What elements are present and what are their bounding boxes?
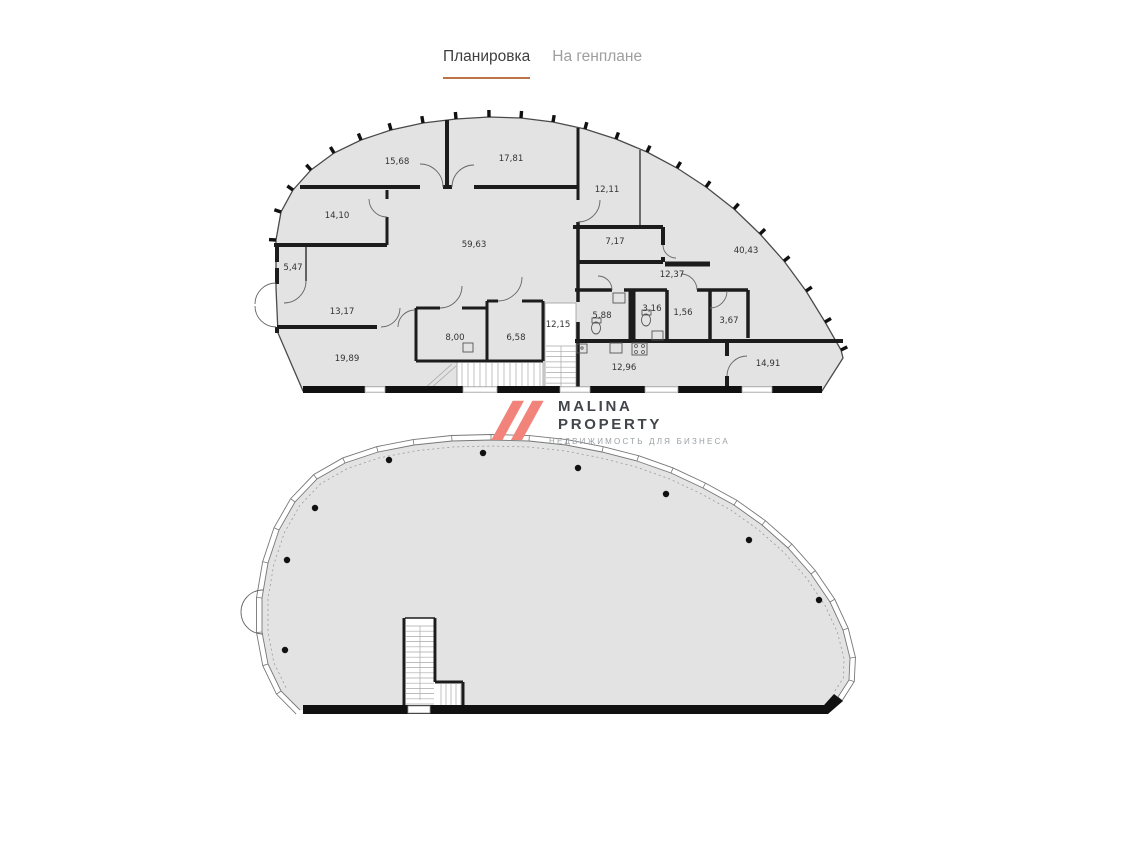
tab-bar: Планировка На генплане [443, 48, 642, 79]
facade-tick [422, 116, 423, 123]
exterior-wall [772, 386, 822, 393]
lower-plan-floor [262, 440, 850, 710]
facade-tick [734, 204, 739, 209]
facade-mullion [314, 475, 317, 479]
tab-planirovka[interactable]: Планировка [443, 48, 530, 79]
door-arc [241, 590, 263, 612]
exterior-wall [678, 386, 742, 393]
facade-mullion [762, 521, 765, 525]
exterior-wall [303, 386, 365, 393]
logo-title-line1: MALINA [558, 398, 730, 416]
plan-page: Планировка На генплане 15,6817,8112,1114… [0, 0, 1139, 853]
room-area-label: 17,81 [499, 154, 524, 164]
room-area-label: 6,58 [506, 333, 525, 343]
lower-stair-shaft [404, 618, 437, 712]
window [645, 387, 678, 392]
facade-mullion [843, 628, 848, 630]
active-tab-underline [443, 77, 530, 79]
room-area-label: 5,88 [592, 311, 611, 321]
facade-tick [521, 111, 522, 118]
facade-tick [677, 162, 681, 168]
facade-tick [274, 210, 281, 212]
window [408, 706, 430, 713]
facade-mullion [788, 544, 792, 548]
door-arc [255, 283, 276, 304]
facade-mullion [602, 447, 603, 452]
tab-genplan[interactable]: На генплане [552, 48, 642, 79]
facade-mullion [703, 483, 705, 488]
logo-names: MALINA PROPERTY НЕДВИЖИМОСТЬ ДЛЯ БИЗНЕСА [558, 397, 730, 446]
door-arc [241, 612, 263, 634]
facade-mullion [291, 499, 295, 502]
column [816, 597, 822, 603]
column [480, 450, 486, 456]
facade-mullion [850, 657, 855, 658]
upper-stair-shaft [545, 303, 576, 390]
upper-stair-flight [457, 362, 543, 390]
facade-tick [358, 134, 361, 140]
facade-mullion [671, 468, 673, 473]
room-area-label: 3,16 [642, 304, 661, 314]
facade-mullion [734, 500, 737, 505]
room-area-label: 40,43 [734, 246, 759, 256]
column [663, 491, 669, 497]
column [386, 457, 392, 463]
facade-mullion [413, 440, 414, 445]
facade-mullion [849, 680, 854, 682]
facade-tick [806, 287, 812, 291]
logo-row: MALINA PROPERTY НЕДВИЖИМОСТЬ ДЛЯ БИЗНЕСА [487, 397, 687, 446]
facade-mullion [830, 599, 835, 602]
room-area-label: 12,11 [595, 185, 620, 195]
facade-tick [784, 257, 789, 261]
facade-tick [553, 115, 554, 122]
exterior-wall [303, 705, 827, 714]
facade-tick [706, 181, 710, 187]
exterior-wall [385, 386, 463, 393]
facade-mullion [811, 571, 815, 574]
tab-planirovka-label: Планировка [443, 48, 530, 65]
facade-mullion [276, 691, 281, 694]
facade-tick [389, 123, 391, 130]
facade-tick [647, 146, 650, 152]
window [365, 387, 385, 392]
facade-mullion [263, 562, 268, 563]
column [746, 537, 752, 543]
door-arc [255, 306, 276, 327]
facade-tick [841, 347, 847, 350]
logo-tagline: НЕДВИЖИМОСТЬ ДЛЯ БИЗНЕСА [549, 437, 730, 446]
facade-tick [760, 229, 765, 234]
room-area-label: 5,47 [283, 263, 302, 273]
room-area-label: 12,96 [612, 363, 637, 373]
room-area-label: 13,17 [330, 307, 355, 317]
facade-mullion [274, 528, 279, 530]
facade-mullion [343, 458, 345, 463]
room-area-label: 14,10 [325, 211, 350, 221]
malina-logo-icon [487, 397, 546, 440]
exterior-wall [590, 386, 645, 393]
window [560, 387, 590, 392]
room-area-label: 15,68 [385, 157, 410, 167]
malina-property-logo: MALINA PROPERTY НЕДВИЖИМОСТЬ ДЛЯ БИЗНЕСА [487, 397, 687, 446]
window [463, 387, 497, 392]
facade-tick [330, 147, 334, 153]
column [284, 557, 290, 563]
tab-genplan-label: На генплане [552, 48, 642, 65]
column [575, 465, 581, 471]
facade-tick [306, 165, 311, 170]
room-area-label: 3,67 [719, 316, 738, 326]
facade-tick [585, 122, 587, 129]
room-area-label: 19,89 [335, 354, 360, 364]
facade-tick [825, 318, 831, 322]
facade-mullion [637, 456, 639, 461]
room-area-label: 1,56 [673, 308, 692, 318]
room-area-label: 12,15 [546, 320, 571, 330]
facade-tick [455, 112, 456, 119]
room-area-label: 59,63 [462, 240, 487, 250]
room-area-label: 12,37 [660, 270, 685, 280]
facade-tick [287, 186, 293, 190]
room-area-label: 14,91 [756, 359, 781, 369]
room-area-label: 8,00 [445, 333, 464, 343]
facade-mullion [263, 664, 268, 666]
facade-tick [616, 132, 618, 139]
column [282, 647, 288, 653]
exterior-wall [497, 386, 560, 393]
logo-title-line2: PROPERTY [558, 416, 730, 434]
room-area-label: 7,17 [605, 237, 624, 247]
window [742, 387, 772, 392]
column [312, 505, 318, 511]
facade-mullion [377, 447, 378, 452]
